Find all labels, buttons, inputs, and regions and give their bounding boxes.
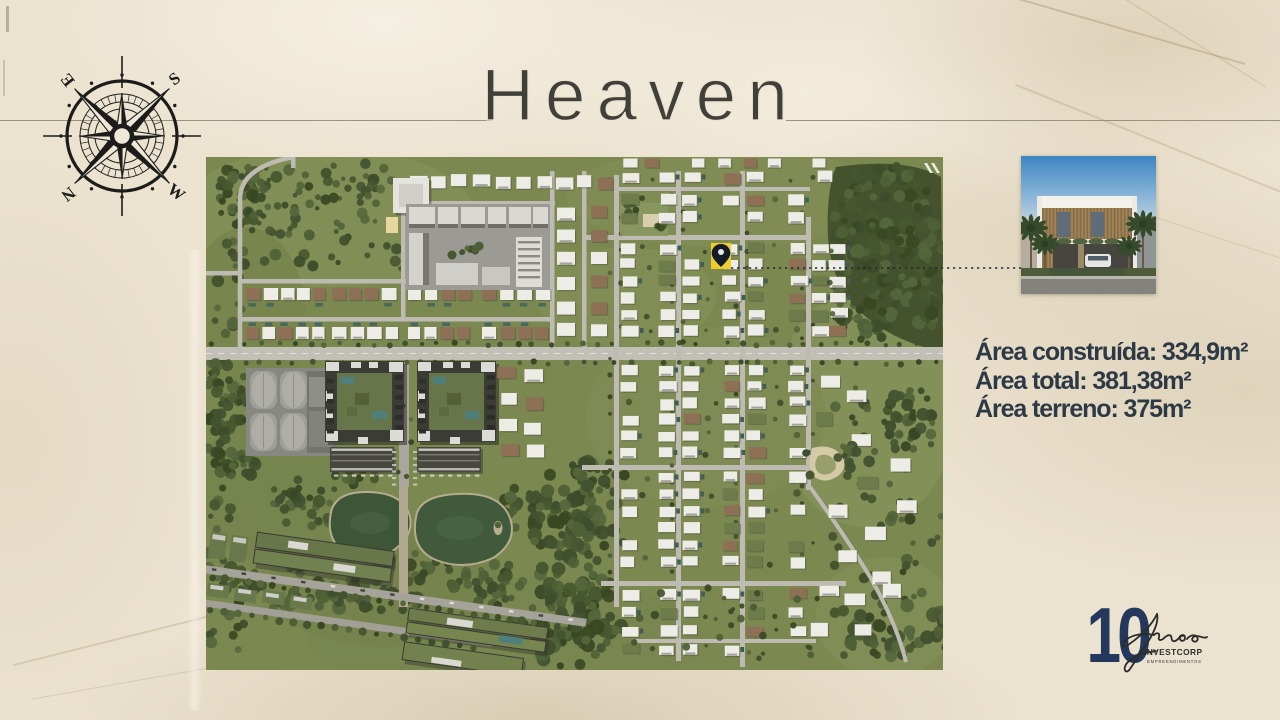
svg-text:S: S xyxy=(165,68,184,89)
svg-text:N: N xyxy=(57,183,79,206)
svg-text:EMPREENDIMENTOS: EMPREENDIMENTOS xyxy=(1147,659,1202,664)
svg-text:INVESTCORP: INVESTCORP xyxy=(1144,647,1202,657)
svg-text:10: 10 xyxy=(1086,593,1149,673)
svg-text:E: E xyxy=(57,70,79,91)
svg-text:W: W xyxy=(164,179,189,204)
